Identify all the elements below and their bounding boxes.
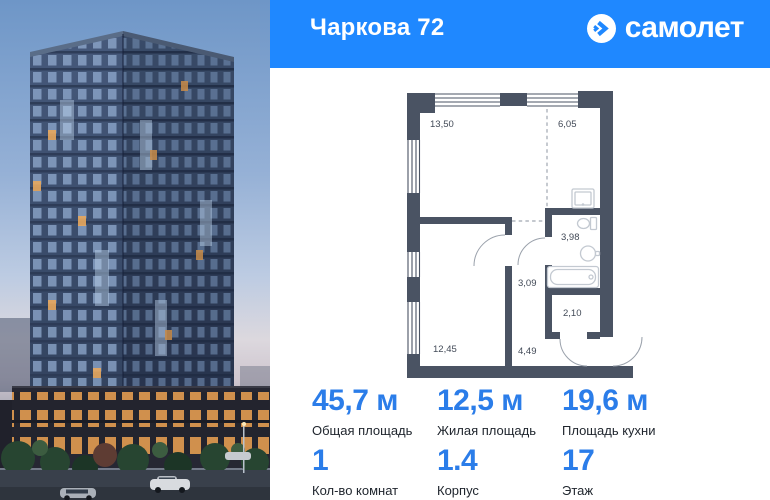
stat-label: Общая площадь (312, 423, 434, 438)
project-title: Чаркова 72 (310, 14, 444, 42)
floor-plan: 13,50 6,05 3,98 3,09 2,10 12,45 4,49 (400, 88, 650, 383)
door-arcs (474, 235, 642, 366)
stat-building: 1.4 Корпус (437, 446, 559, 498)
stat-floor: 17 Этаж (562, 446, 684, 498)
header: Чаркова 72 самолет (270, 0, 770, 68)
washbasin-icon (581, 246, 600, 261)
room-area-label: 13,50 (430, 119, 454, 130)
stat-label: Площадь кухни (562, 423, 684, 438)
stat-living-area: 12,5 м Жилая площадь (437, 386, 559, 438)
stat-value: 1 (312, 446, 434, 476)
room-area-label: 3,09 (518, 278, 537, 289)
stat-label: Корпус (437, 483, 559, 498)
stat-value: 45,7 м (312, 386, 434, 416)
building-photo-art (0, 0, 270, 500)
stat-total-area: 45,7 м Общая площадь (312, 386, 434, 438)
kitchen-sink-icon (572, 189, 594, 208)
stat-label: Жилая площадь (437, 423, 559, 438)
listing-card[interactable]: Чаркова 72 самолет (0, 0, 770, 500)
info-panel: Чаркова 72 самолет (270, 0, 770, 500)
walls (407, 91, 633, 378)
brand-logo: самолет (587, 13, 744, 43)
stat-value: 1.4 (437, 446, 559, 476)
samolet-arrow-icon (587, 14, 616, 43)
dashed-partition (512, 109, 547, 221)
stat-label: Кол-во комнат (312, 483, 434, 498)
stat-kitchen-area: 19,6 м Площадь кухни (562, 386, 684, 438)
stat-value: 12,5 м (437, 386, 559, 416)
toilet-icon (578, 218, 597, 230)
stat-rooms-count: 1 Кол-во комнат (312, 446, 434, 498)
room-area-label: 12,45 (433, 344, 457, 355)
room-area-label: 2,10 (563, 308, 582, 319)
room-area-label: 4,49 (518, 346, 537, 357)
stat-value: 17 (562, 446, 684, 476)
brand-name: самолет (625, 13, 744, 43)
stat-label: Этаж (562, 483, 684, 498)
room-area-label: 3,98 (561, 232, 580, 243)
room-area-label: 6,05 (558, 119, 577, 130)
stat-value: 19,6 м (562, 386, 684, 416)
building-photo (0, 0, 270, 500)
bathtub-icon (548, 267, 599, 288)
